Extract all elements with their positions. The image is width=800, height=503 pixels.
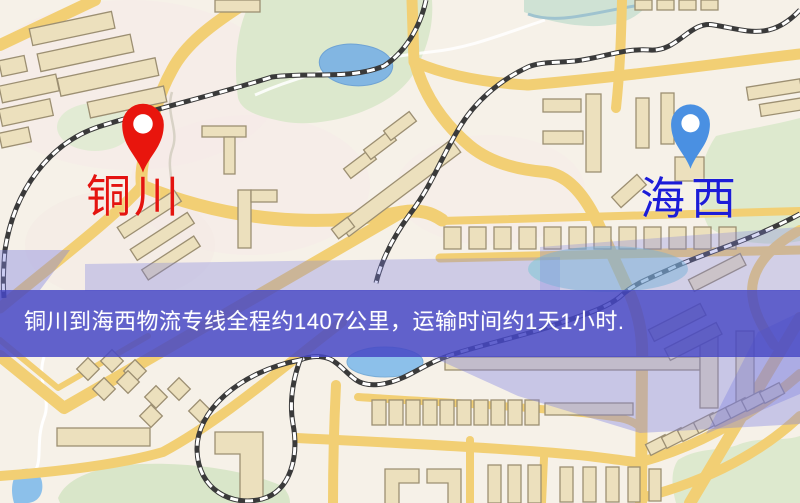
map-pin-icon[interactable]: [117, 101, 169, 174]
destination-label: 海西: [640, 176, 742, 221]
map-pin-icon[interactable]: [666, 102, 715, 170]
map-view[interactable]: 铜川到海西物流专线全程约1407公里，运输时间约1天1小时. 铜川 海西: [0, 0, 800, 503]
origin-pin-shape: [122, 104, 164, 173]
origin-pin-hole: [133, 114, 153, 134]
origin-label: 铜川: [86, 174, 182, 219]
origin-marker[interactable]: [117, 101, 169, 174]
destination-marker[interactable]: [666, 102, 715, 170]
destination-pin-hole: [681, 114, 699, 132]
destination-pin-shape: [671, 104, 710, 168]
route-info-banner: 铜川到海西物流专线全程约1407公里，运输时间约1天1小时.: [0, 290, 800, 357]
map-canvas[interactable]: [0, 0, 800, 503]
route-info-text: 铜川到海西物流专线全程约1407公里，运输时间约1天1小时.: [24, 304, 625, 336]
